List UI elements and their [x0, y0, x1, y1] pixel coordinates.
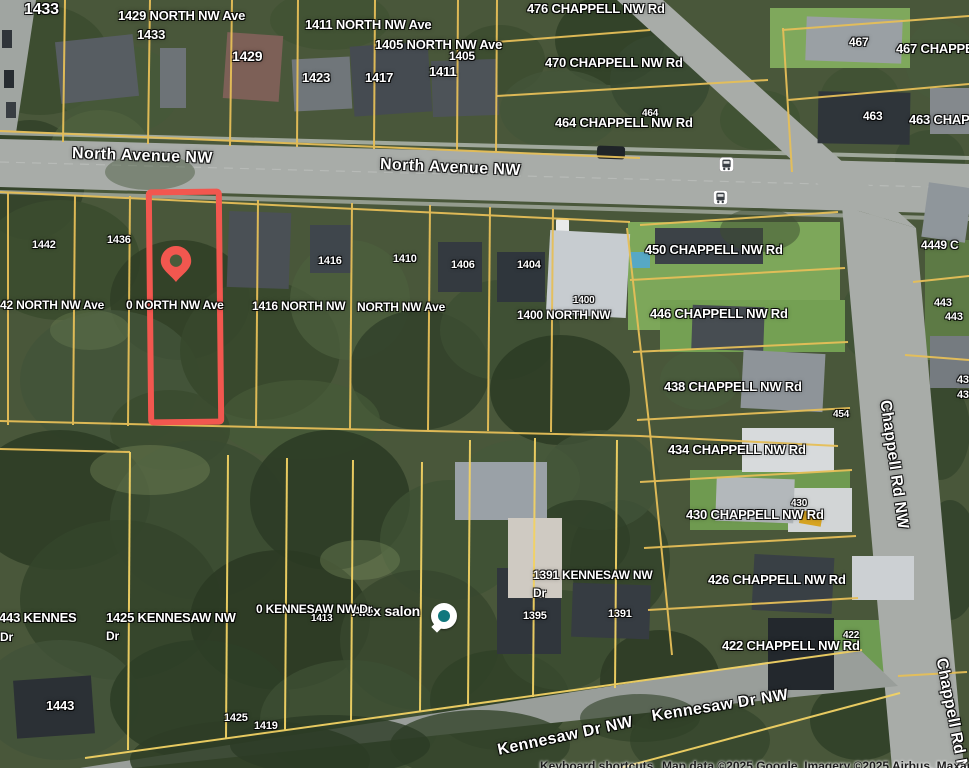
poi-icon[interactable]: [431, 603, 457, 629]
poi-dot: [438, 610, 450, 622]
satellite-map[interactable]: Alex salon North Avenue NWNorth Avenue N…: [0, 0, 969, 768]
bus-stop-icon[interactable]: [719, 157, 734, 172]
location-pin-icon[interactable]: [159, 245, 193, 283]
satellite-imagery: [0, 0, 969, 768]
map-data-attribution: Map data ©2025 Google Imagery ©2025 Airb…: [662, 759, 969, 768]
keyboard-shortcuts-link[interactable]: Keyboard shortcuts: [540, 759, 653, 768]
highlighted-parcel-outline: [146, 189, 224, 426]
bus-stop-icon[interactable]: [713, 190, 728, 205]
